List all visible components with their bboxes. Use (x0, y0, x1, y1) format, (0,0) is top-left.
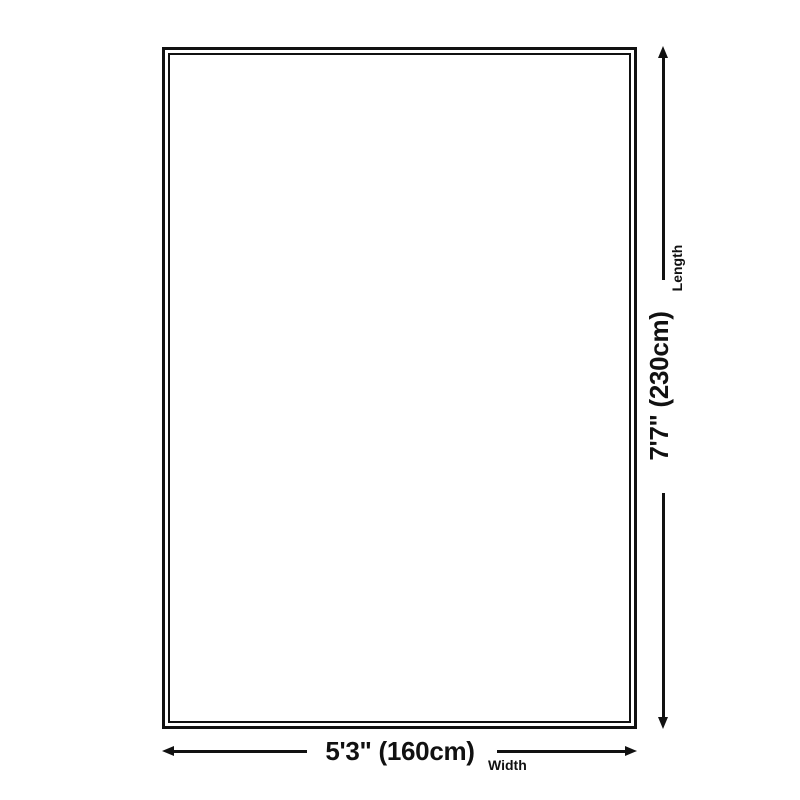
length-arrow-line-lower (662, 493, 665, 723)
width-arrow-line-left (172, 750, 307, 753)
arrow-right-icon (625, 746, 637, 756)
length-arrow-line-upper (662, 55, 665, 280)
arrow-down-icon (658, 717, 668, 729)
length-value: 7'7" (230cm) (646, 311, 672, 460)
diagram-canvas: Length 7'7" (230cm) 5'3" (160cm) Width (0, 0, 800, 800)
width-label: Width (488, 758, 527, 772)
rug-outline (162, 47, 637, 729)
width-value: 5'3" (160cm) (325, 738, 474, 764)
width-arrow-line-right (497, 750, 626, 753)
length-label: Length (670, 245, 684, 292)
rug-inner-outline (168, 53, 631, 723)
